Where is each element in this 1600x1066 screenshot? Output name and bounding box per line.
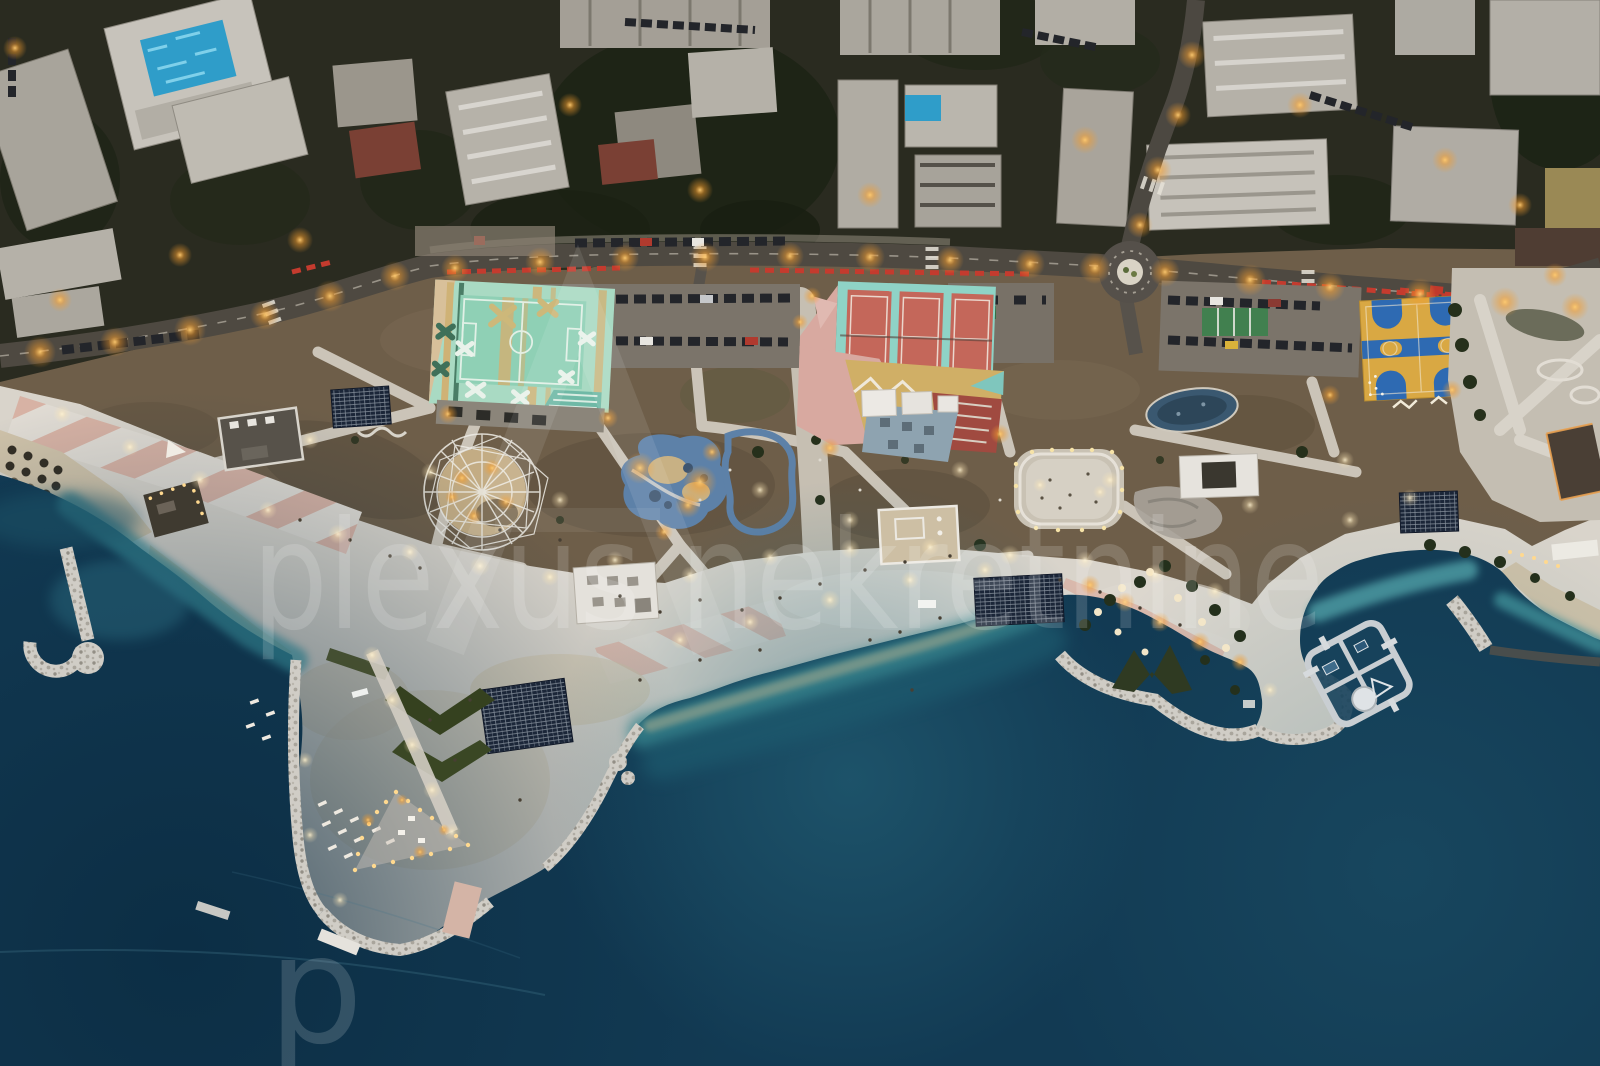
building: [1390, 126, 1518, 225]
building: [1035, 0, 1135, 45]
solar-array-west: [331, 386, 392, 428]
aerial-photo-znjan-beach: plexus nekretnine p: [0, 0, 1600, 1066]
watermark-text-tile: p: [268, 904, 363, 1066]
building: [688, 47, 777, 118]
building: [332, 59, 417, 128]
dark-roof-pavilion: [219, 408, 303, 470]
red-roof-house: [349, 122, 421, 179]
building: [1490, 0, 1600, 95]
solar-array-peninsula: [479, 678, 573, 753]
red-roof-house: [598, 139, 658, 185]
building: [1056, 88, 1133, 226]
slab-building: [1147, 139, 1330, 230]
apartment-block: [446, 74, 569, 205]
watermark-text: plexus nekretnine: [252, 490, 1324, 664]
construction-site: [1545, 168, 1600, 228]
building: [1395, 0, 1475, 55]
dark-roof-building: [1515, 228, 1600, 266]
